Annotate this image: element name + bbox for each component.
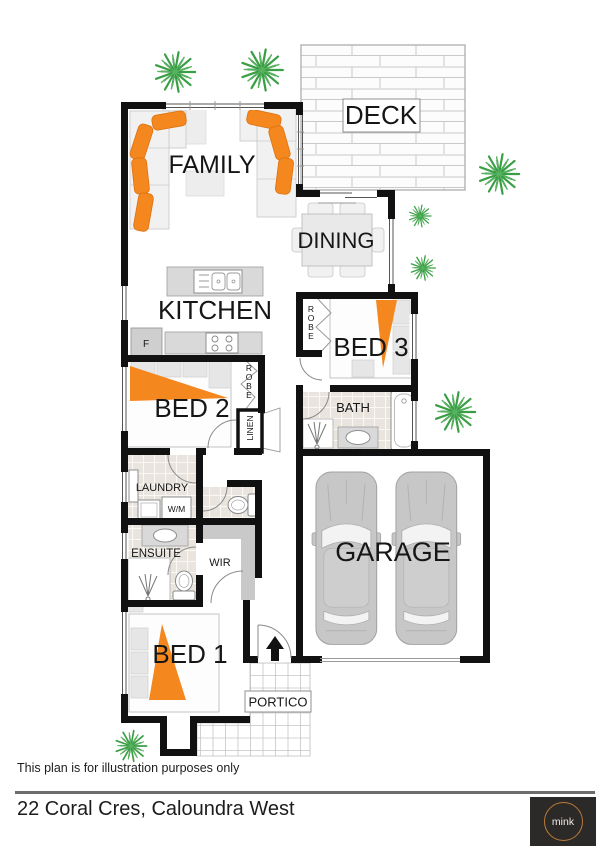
room-label-family: FAMILY [168, 151, 255, 179]
mink-logo-ring: mink [544, 802, 583, 841]
mink-logo: mink [530, 797, 596, 846]
room-label-laundry: LAUNDRY [136, 482, 189, 494]
plant [409, 204, 432, 227]
room-label-kitchen: KITCHEN [158, 295, 272, 325]
floor-plan: DECK [0, 0, 600, 758]
room-label-bed1: BED 1 [152, 639, 227, 669]
fridge-label: F [143, 339, 149, 350]
room-label-deck: DECK [345, 100, 418, 130]
room-label-portico: PORTICO [249, 695, 308, 710]
room-label-wir: WIR [209, 557, 230, 569]
plant [479, 153, 521, 195]
washing-machine-label: W/M [168, 504, 185, 514]
label-robe-bed3: ROBE [308, 304, 315, 341]
entry-arrow [266, 636, 284, 661]
room-label-ensuite: ENSUITE [131, 548, 181, 560]
disclaimer-text: This plan is for illustration purposes o… [17, 761, 239, 775]
label-linen: LINEN [245, 415, 255, 440]
room-label-bed3: BED 3 [333, 332, 408, 362]
kitchen-bench [165, 332, 262, 354]
fridge: F [131, 328, 162, 358]
bed3-robe-doors [316, 299, 331, 355]
plant [241, 48, 284, 92]
linen-door [262, 408, 280, 452]
room-label-dining: DINING [298, 228, 375, 253]
room-label-bed2: BED 2 [154, 393, 229, 423]
mink-logo-text: mink [552, 816, 574, 828]
plant [410, 255, 436, 281]
kitchen-island [167, 267, 263, 296]
plant [435, 391, 477, 433]
deck-area: DECK [301, 45, 465, 190]
cooktop [206, 333, 238, 353]
room-label-bath: BATH [336, 400, 370, 415]
room-label-garage: GARAGE [335, 537, 451, 567]
plant [115, 729, 148, 762]
ensuite-shower [128, 558, 170, 602]
plant [155, 51, 197, 93]
footer-divider [15, 791, 595, 794]
label-robe-bed2: ROBE [246, 363, 253, 400]
address-text: 22 Coral Cres, Caloundra West [17, 798, 295, 821]
